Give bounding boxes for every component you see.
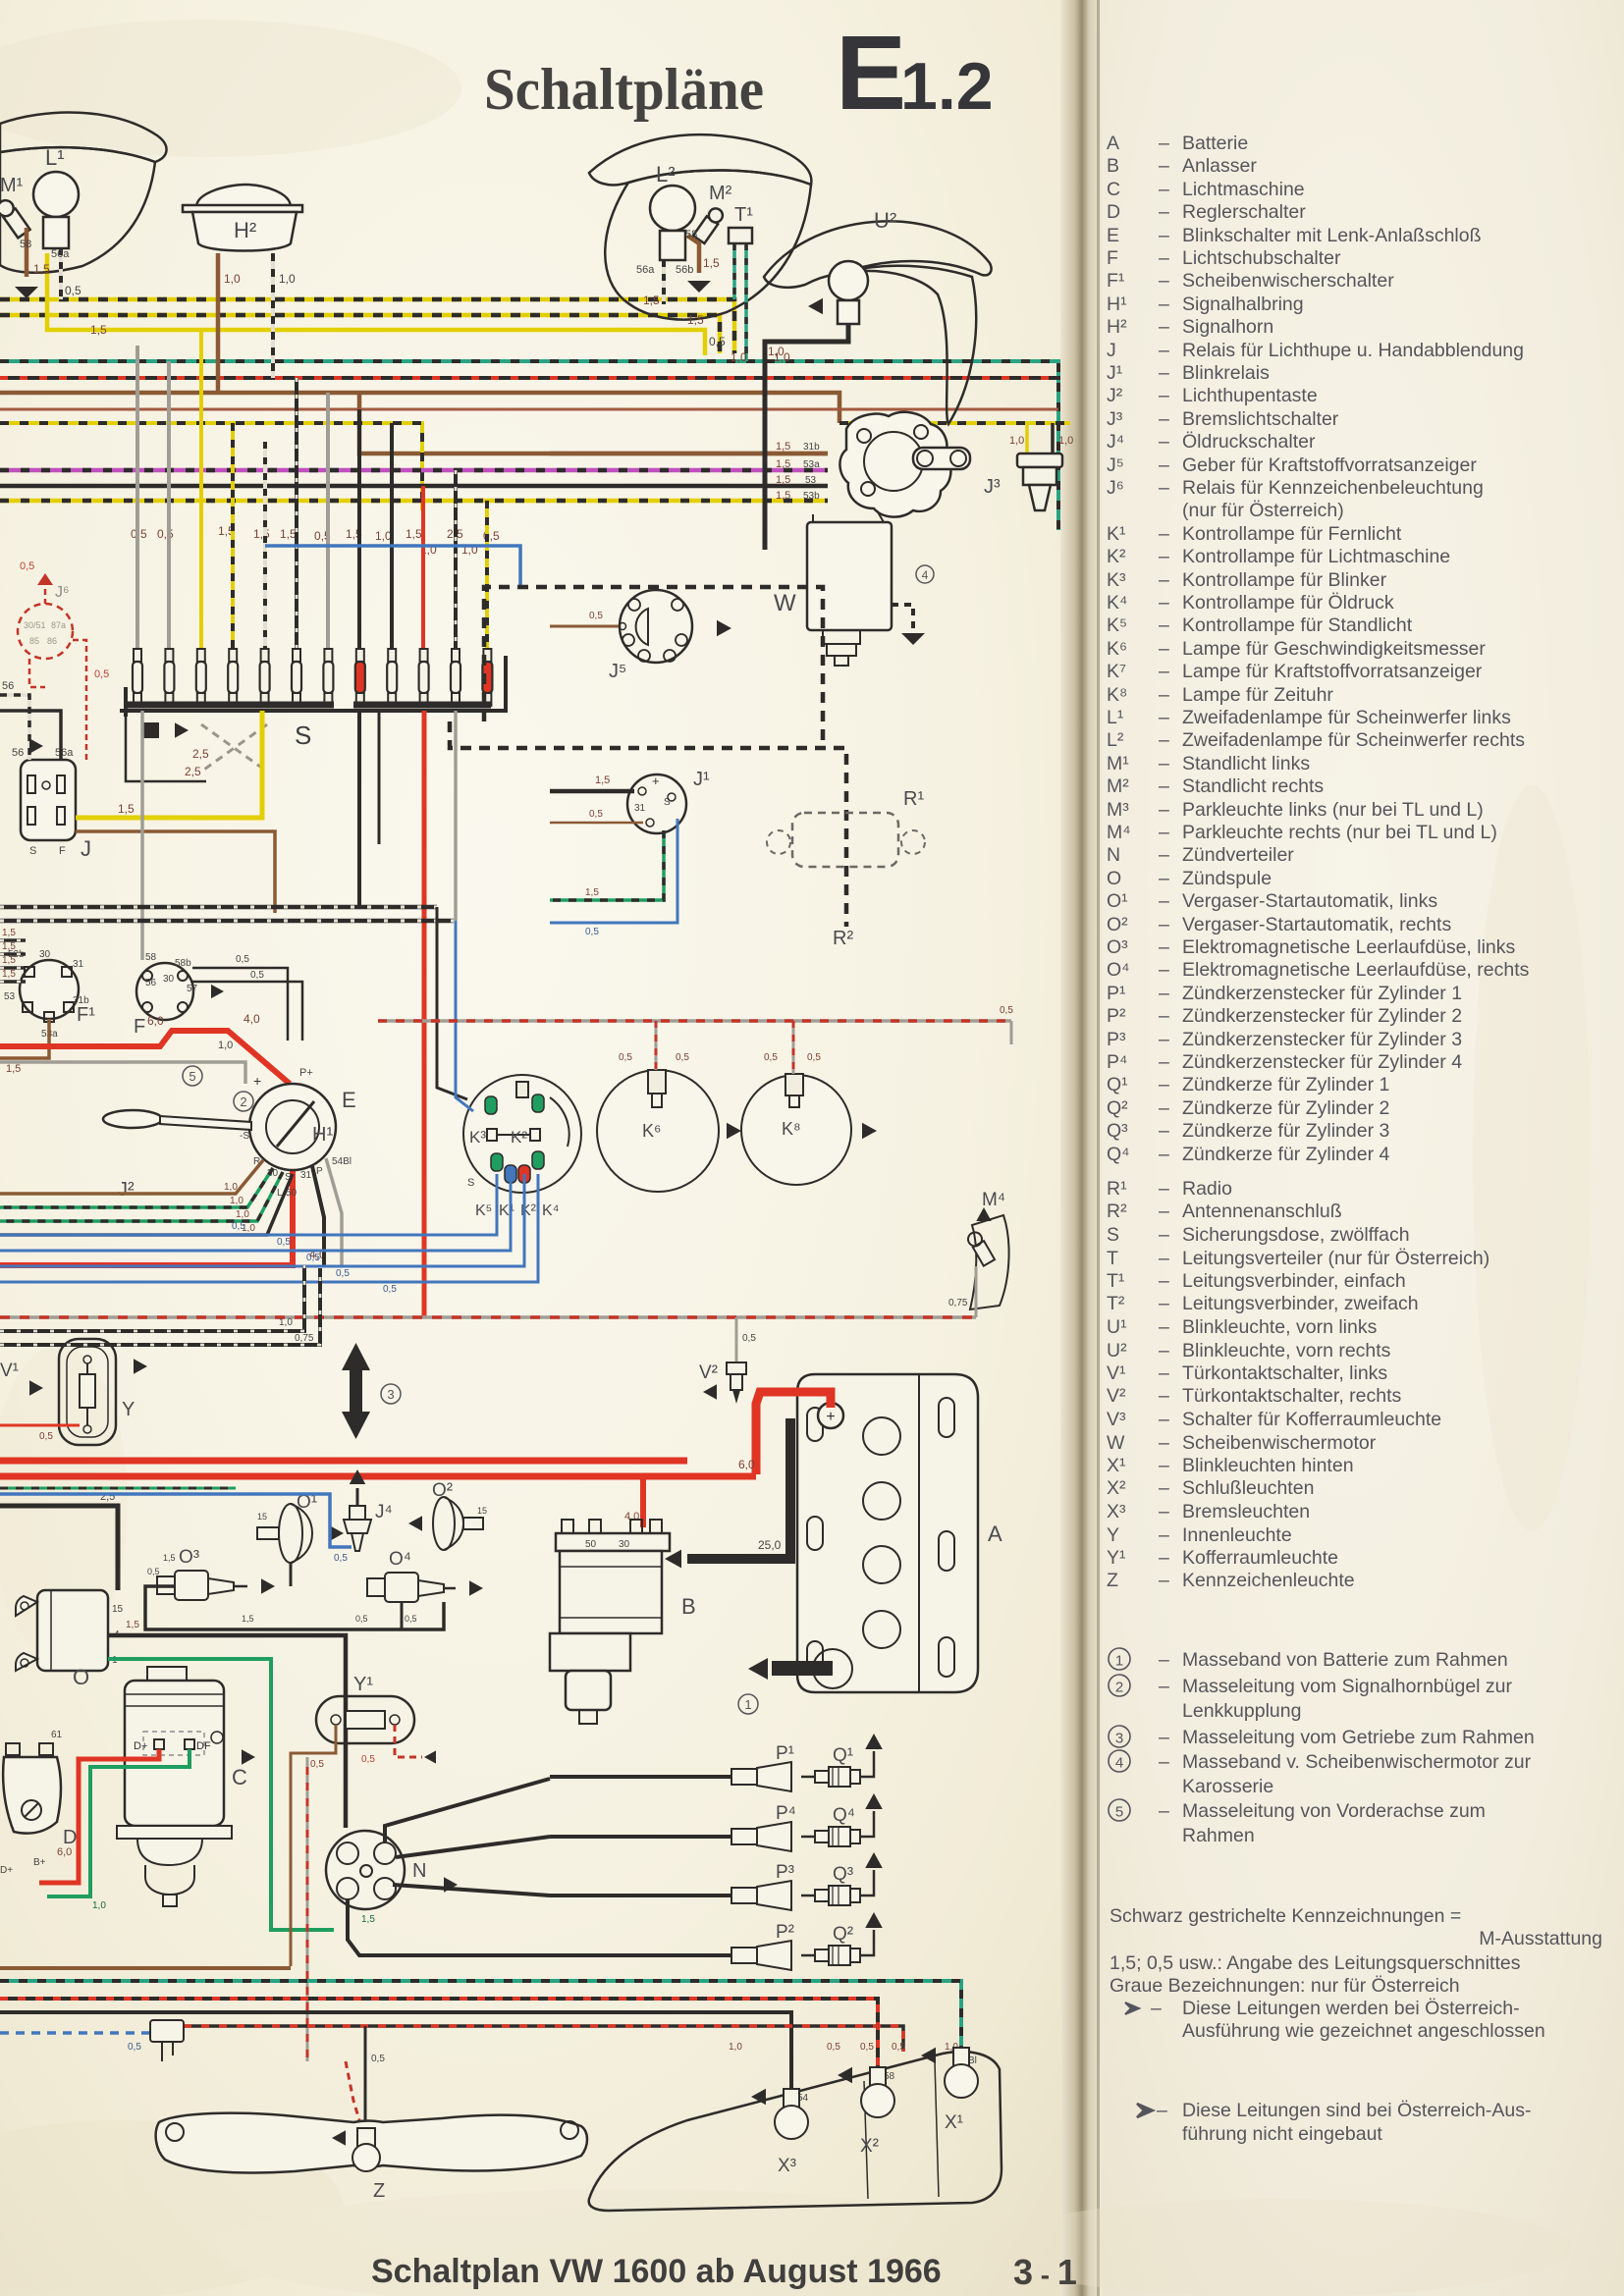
svg-text:Zündkerze für Zylinder 1: Zündkerze für Zylinder 1	[1182, 1074, 1389, 1095]
svg-text:Kofferraumleuchte: Kofferraumleuchte	[1182, 1547, 1338, 1569]
svg-text:–: –	[1159, 822, 1169, 843]
svg-text:0,5: 0,5	[232, 1221, 245, 1232]
svg-text:56: 56	[12, 747, 24, 759]
svg-text:Diese Leitungen werden bei Öst: Diese Leitungen werden bei Österreich-	[1182, 1998, 1520, 2019]
svg-text:Y¹: Y¹	[1107, 1547, 1126, 1569]
svg-text:Q¹: Q¹	[833, 1745, 853, 1766]
svg-text:53: 53	[805, 475, 817, 486]
svg-text:L²: L²	[656, 162, 676, 187]
svg-text:0,5: 0,5	[336, 1268, 350, 1279]
svg-text:J²: J²	[118, 1179, 135, 1201]
svg-text:Geber für Kraftstoffvorratsanz: Geber für Kraftstoffvorratsanzeiger	[1182, 454, 1477, 476]
svg-text:Lampe für Zeituhr: Lampe für Zeituhr	[1182, 684, 1333, 706]
svg-text:4: 4	[1115, 1755, 1123, 1772]
svg-text:K²: K²	[1107, 546, 1126, 567]
svg-text:–: –	[1159, 270, 1169, 292]
svg-text:54Bl: 54Bl	[332, 1156, 352, 1167]
svg-text:Lampe für Kraftstoffvorratsanz: Lampe für Kraftstoffvorratsanzeiger	[1182, 661, 1483, 682]
svg-text:Schalter für Kofferraumleuchte: Schalter für Kofferraumleuchte	[1182, 1409, 1441, 1430]
svg-text:–: –	[1159, 1751, 1169, 1773]
svg-text:–: –	[1159, 868, 1169, 889]
svg-text:–: –	[1159, 1120, 1169, 1142]
svg-text:–: –	[1159, 914, 1169, 935]
svg-text:P²: P²	[776, 1922, 794, 1943]
svg-text:1,5: 1,5	[242, 1614, 254, 1624]
svg-text:1: 1	[1115, 1653, 1123, 1670]
svg-text:Blinkleuchten hinten: Blinkleuchten hinten	[1182, 1455, 1354, 1476]
svg-text:P: P	[316, 1166, 323, 1177]
svg-text:1,0: 1,0	[279, 272, 296, 286]
svg-text:D+: D+	[0, 1865, 13, 1876]
svg-text:3: 3	[387, 1387, 394, 1402]
svg-text:A: A	[988, 1522, 1002, 1546]
svg-text:–: –	[1159, 1477, 1169, 1499]
svg-text:–: –	[1159, 569, 1169, 591]
svg-text:Lenkkupplung: Lenkkupplung	[1182, 1700, 1301, 1722]
svg-text:O⁴: O⁴	[1107, 959, 1130, 981]
svg-text:–: –	[1159, 1570, 1169, 1591]
svg-text:X³: X³	[778, 2156, 796, 2176]
svg-text:Graue Bezeichnungen: nur für Ö: Graue Bezeichnungen: nur für Österreich	[1110, 1975, 1460, 1997]
svg-text:0,5: 0,5	[306, 1253, 320, 1263]
svg-text:2: 2	[240, 1095, 246, 1109]
svg-text:1,0: 1,0	[768, 345, 785, 358]
svg-text:Zündkerze für Zylinder 3: Zündkerze für Zylinder 3	[1182, 1120, 1389, 1142]
svg-text:56a: 56a	[51, 248, 70, 260]
svg-text:15: 15	[257, 1512, 267, 1522]
svg-text:1,5: 1,5	[687, 313, 704, 327]
svg-text:1,0: 1,0	[731, 350, 747, 364]
svg-text:Zündkerze für Zylinder 2: Zündkerze für Zylinder 2	[1182, 1097, 1389, 1119]
svg-text:1,5: 1,5	[33, 262, 50, 276]
svg-text:Leitungsverbinder, einfach: Leitungsverbinder, einfach	[1182, 1270, 1406, 1292]
svg-text:–: –	[1159, 1293, 1169, 1314]
svg-text:J⁴: J⁴	[1107, 431, 1124, 453]
svg-text:31b: 31b	[73, 995, 89, 1006]
svg-text:0,5: 0,5	[310, 1759, 324, 1770]
svg-text:–: –	[1159, 523, 1169, 545]
svg-text:M¹: M¹	[0, 175, 24, 196]
svg-text:4: 4	[922, 568, 929, 582]
svg-text:–: –	[1159, 661, 1169, 682]
svg-text:Rahmen: Rahmen	[1182, 1825, 1255, 1846]
svg-text:P¹: P¹	[1107, 983, 1126, 1004]
svg-text:Kontrollampe für Blinker: Kontrollampe für Blinker	[1182, 569, 1387, 591]
svg-text:Q³: Q³	[833, 1864, 853, 1885]
svg-text:(nur für Österreich): (nur für Österreich)	[1182, 500, 1344, 521]
svg-text:J¹: J¹	[693, 769, 710, 790]
svg-text:0,5: 0,5	[619, 1052, 632, 1063]
svg-text:J: J	[81, 836, 91, 861]
svg-text:–: –	[1159, 316, 1169, 338]
svg-text:O⁴: O⁴	[389, 1549, 411, 1570]
svg-text:0,5: 0,5	[405, 1614, 417, 1624]
svg-text:0,5: 0,5	[585, 927, 599, 937]
svg-text:–: –	[1159, 1362, 1169, 1384]
svg-text:58: 58	[20, 239, 31, 250]
svg-text:Vergaser-Startautomatik, recht: Vergaser-Startautomatik, rechts	[1182, 914, 1451, 935]
svg-text:–: –	[1159, 1248, 1169, 1269]
svg-text:K¹: K¹	[1107, 523, 1126, 545]
svg-text:K⁴: K⁴	[1107, 592, 1127, 614]
svg-text:0,5: 0,5	[383, 1284, 397, 1295]
svg-text:–: –	[1159, 1727, 1169, 1748]
svg-text:Leitungsverteiler (nur für Öst: Leitungsverteiler (nur für Österreich)	[1182, 1248, 1489, 1269]
svg-text:1,5: 1,5	[595, 774, 610, 786]
svg-text:0,5: 0,5	[20, 561, 34, 572]
svg-text:0,5: 0,5	[807, 1052, 821, 1063]
svg-text:D+: D+	[134, 1740, 147, 1752]
svg-text:Schaltpläne: Schaltpläne	[484, 57, 764, 122]
svg-text:E: E	[342, 1088, 356, 1112]
svg-text:1,5: 1,5	[118, 802, 135, 816]
svg-text:0,5: 0,5	[371, 2054, 385, 2064]
svg-text:H²: H²	[1107, 316, 1127, 338]
svg-text:–: –	[1159, 844, 1169, 866]
svg-text:–: –	[1159, 1201, 1169, 1222]
svg-text:0,5: 0,5	[39, 1431, 53, 1442]
svg-text:30: 30	[619, 1539, 630, 1550]
svg-text:M³: M³	[1107, 799, 1129, 821]
svg-text:0,5: 0,5	[65, 284, 81, 297]
svg-text:C: C	[1107, 179, 1120, 200]
svg-text:30: 30	[39, 949, 51, 960]
svg-text:Ausführung wie gezeichnet ange: Ausführung wie gezeichnet angeschlossen	[1182, 2020, 1545, 2042]
svg-text:Zündkerzenstecker für Zylinder: Zündkerzenstecker für Zylinder 3	[1182, 1029, 1462, 1050]
svg-text:0,5: 0,5	[361, 1754, 375, 1765]
svg-text:S: S	[29, 845, 36, 857]
svg-text:Kennzeichenleuchte: Kennzeichenleuchte	[1182, 1570, 1355, 1591]
svg-text:–: –	[1159, 546, 1169, 567]
svg-text:M²: M²	[1107, 775, 1129, 797]
svg-text:–: –	[1159, 340, 1169, 361]
svg-text:1,5: 1,5	[2, 969, 16, 980]
svg-text:P³: P³	[1107, 1029, 1126, 1050]
svg-text:–: –	[1159, 179, 1169, 200]
svg-text:Parkleuchte links (nur bei TL: Parkleuchte links (nur bei TL und L)	[1182, 799, 1484, 821]
svg-text:Blinkschalter mit Lenk-Anlaßsc: Blinkschalter mit Lenk-Anlaßschloß	[1182, 225, 1482, 246]
svg-text:0,5: 0,5	[709, 335, 726, 348]
svg-text:Batterie: Batterie	[1182, 133, 1248, 154]
svg-text:M¹: M¹	[1107, 753, 1129, 774]
svg-text:F¹: F¹	[77, 1004, 95, 1026]
svg-text:Zündverteiler: Zündverteiler	[1182, 844, 1294, 866]
svg-text:P²: P²	[1107, 1005, 1126, 1027]
svg-text:Kontrollampe für Fernlicht: Kontrollampe für Fernlicht	[1182, 523, 1402, 545]
svg-text:Zündkerzenstecker für Zylinder: Zündkerzenstecker für Zylinder 4	[1182, 1051, 1462, 1073]
svg-text:A: A	[1107, 133, 1119, 154]
svg-text:58b: 58b	[175, 958, 191, 969]
svg-text:87a: 87a	[51, 620, 66, 630]
svg-text:86: 86	[47, 636, 57, 646]
svg-text:K²: K²	[511, 1128, 527, 1147]
svg-text:0,5: 0,5	[277, 1237, 291, 1248]
svg-text:–: –	[1159, 225, 1169, 246]
svg-text:0,5: 0,5	[892, 2042, 905, 2053]
svg-text:0,5: 0,5	[250, 970, 264, 981]
svg-text:1.2: 1.2	[900, 49, 994, 124]
svg-text:1,0: 1,0	[375, 529, 392, 543]
svg-text:O: O	[1107, 868, 1121, 889]
svg-text:S: S	[295, 721, 311, 750]
svg-text:Masseleitung von Vorderachse z: Masseleitung von Vorderachse zum	[1182, 1800, 1486, 1822]
svg-text:Lampe für Geschwindigkeitsmess: Lampe für Geschwindigkeitsmesser	[1182, 638, 1486, 660]
svg-text:0,5: 0,5	[764, 1052, 778, 1063]
svg-text:Standlicht links: Standlicht links	[1182, 753, 1310, 774]
svg-text:R²: R²	[833, 928, 853, 949]
svg-text:–: –	[1159, 1097, 1169, 1119]
svg-text:Signalhalbring: Signalhalbring	[1182, 294, 1304, 315]
svg-text:P³: P³	[776, 1862, 794, 1883]
svg-text:1,0: 1,0	[236, 1209, 249, 1220]
svg-text:1,5: 1,5	[776, 458, 790, 470]
svg-text:X³: X³	[1107, 1501, 1126, 1522]
svg-text:K⁶: K⁶	[642, 1121, 661, 1141]
svg-text:56a: 56a	[55, 747, 74, 759]
svg-text:15: 15	[477, 1506, 487, 1516]
svg-text:0,75: 0,75	[295, 1333, 314, 1344]
svg-text:31: 31	[634, 803, 646, 814]
svg-text:1,5: 1,5	[126, 1620, 139, 1630]
svg-text:25,0: 25,0	[758, 1538, 782, 1552]
svg-text:B+: B+	[33, 1857, 46, 1868]
svg-text:E: E	[836, 13, 904, 132]
svg-text:K³: K³	[1107, 569, 1126, 591]
svg-text:0,5: 0,5	[236, 954, 249, 965]
svg-text:+: +	[826, 1409, 835, 1425]
svg-text:J²: J²	[1107, 385, 1123, 406]
svg-text:Q²: Q²	[1107, 1097, 1128, 1119]
svg-text:1,5: 1,5	[2, 955, 16, 966]
svg-text:0,5: 0,5	[860, 2042, 874, 2053]
svg-text:56: 56	[145, 978, 157, 988]
svg-text:–: –	[1159, 1385, 1169, 1407]
svg-text:K⁵: K⁵	[1107, 614, 1127, 636]
svg-text:Z: Z	[1107, 1570, 1118, 1591]
svg-text:Masseleitung vom Getriebe zum: Masseleitung vom Getriebe zum Rahmen	[1182, 1727, 1535, 1748]
svg-text:J⁵: J⁵	[1107, 454, 1124, 476]
svg-text:0,5: 0,5	[355, 1614, 368, 1624]
svg-text:2,5: 2,5	[185, 765, 201, 778]
svg-text:–: –	[1159, 155, 1169, 177]
svg-text:Reglerschalter: Reglerschalter	[1182, 201, 1306, 223]
svg-text:–: –	[1159, 362, 1169, 384]
svg-text:53a: 53a	[803, 459, 820, 470]
svg-text:V¹: V¹	[1107, 1362, 1126, 1384]
svg-text:Anlasser: Anlasser	[1182, 155, 1257, 177]
svg-text:W: W	[1107, 1432, 1125, 1454]
svg-text:T: T	[1107, 1248, 1118, 1269]
svg-text:31b: 31b	[803, 442, 820, 453]
svg-text:Schlußleuchten: Schlußleuchten	[1182, 1477, 1314, 1499]
svg-text:–: –	[1159, 799, 1169, 821]
svg-text:–: –	[1159, 753, 1169, 774]
svg-text:0,5: 0,5	[94, 668, 109, 680]
svg-text:–: –	[1159, 294, 1169, 315]
svg-text:Blinkrelais: Blinkrelais	[1182, 362, 1270, 384]
svg-text:Lichthupentaste: Lichthupentaste	[1182, 385, 1318, 406]
svg-text:0,5: 0,5	[334, 1553, 348, 1564]
svg-text:–: –	[1159, 1524, 1169, 1546]
svg-text:Zündkerzenstecker für Zylinder: Zündkerzenstecker für Zylinder 1	[1182, 983, 1462, 1004]
svg-text:U¹: U¹	[1107, 1316, 1127, 1338]
svg-text:31: 31	[73, 959, 84, 970]
svg-text:Lichtmaschine: Lichtmaschine	[1182, 179, 1305, 200]
svg-text:–: –	[1159, 1501, 1169, 1522]
svg-text:F: F	[1107, 247, 1118, 269]
svg-text:S: S	[467, 1177, 474, 1189]
svg-text:R²: R²	[1107, 1201, 1127, 1222]
svg-text:0,5: 0,5	[1000, 1005, 1013, 1016]
svg-text:Vergaser-Startautomatik, links: Vergaser-Startautomatik, links	[1182, 890, 1437, 912]
svg-text:1,0: 1,0	[92, 1900, 106, 1911]
svg-text:15: 15	[112, 1604, 124, 1615]
svg-text:X¹: X¹	[945, 2112, 963, 2133]
svg-text:2,5: 2,5	[192, 747, 209, 761]
svg-text:Scheibenwischermotor: Scheibenwischermotor	[1182, 1432, 1377, 1454]
svg-text:M⁴: M⁴	[1107, 822, 1131, 843]
svg-text:M⁴: M⁴	[982, 1190, 1005, 1210]
svg-text:5: 5	[1115, 1804, 1123, 1821]
svg-text:0,75: 0,75	[948, 1298, 968, 1308]
svg-text:0,5: 0,5	[742, 1333, 756, 1344]
svg-text:T¹: T¹	[1107, 1270, 1125, 1292]
svg-text:V¹: V¹	[0, 1361, 19, 1381]
svg-text:Parkleuchte rechts (nur bei TL: Parkleuchte rechts (nur bei TL und L)	[1182, 822, 1497, 843]
svg-text:1,5: 1,5	[6, 1063, 21, 1075]
svg-text:1,5: 1,5	[90, 323, 107, 337]
svg-text:0,5: 0,5	[147, 1567, 160, 1576]
svg-text:Leitungsverbinder, zweifach: Leitungsverbinder, zweifach	[1182, 1293, 1419, 1314]
svg-text:1,5: 1,5	[776, 441, 790, 453]
svg-text:56b: 56b	[676, 264, 693, 276]
svg-text:K⁸: K⁸	[1107, 684, 1127, 706]
svg-text:–: –	[1159, 133, 1169, 154]
svg-text:Kontrollampe für Standlicht: Kontrollampe für Standlicht	[1182, 614, 1413, 636]
svg-text:O³: O³	[179, 1547, 199, 1568]
svg-text:Karosserie: Karosserie	[1182, 1776, 1273, 1797]
svg-text:X²: X²	[860, 2136, 879, 2157]
svg-text:M-Ausstattung: M-Ausstattung	[1479, 1928, 1602, 1949]
svg-text:K⁷: K⁷	[1107, 661, 1126, 682]
svg-text:Scheibenwischerschalter: Scheibenwischerschalter	[1182, 270, 1394, 292]
svg-text:–: –	[1159, 775, 1169, 797]
svg-text:Sicherungsdose, zwölffach: Sicherungsdose, zwölffach	[1182, 1224, 1410, 1246]
svg-text:Schwarz gestrichelte Kennzeich: Schwarz gestrichelte Kennzeichnungen =	[1110, 1905, 1461, 1927]
svg-text:–: –	[1159, 983, 1169, 1004]
svg-text:–: –	[1159, 454, 1169, 476]
svg-text:Masseleitung vom Signalhornbüg: Masseleitung vom Signalhornbügel zur	[1182, 1676, 1513, 1697]
svg-text:1,5: 1,5	[2, 928, 16, 938]
svg-text:1,5: 1,5	[406, 527, 422, 541]
svg-text:–: –	[1159, 707, 1169, 728]
svg-text:1,5: 1,5	[585, 887, 599, 898]
svg-text:K⁴: K⁴	[542, 1202, 560, 1219]
svg-text:J: J	[1107, 340, 1116, 361]
svg-text:–: –	[1159, 936, 1169, 958]
svg-text:1: 1	[744, 1697, 751, 1712]
svg-text:0,5: 0,5	[589, 611, 603, 621]
svg-text:85: 85	[29, 636, 39, 646]
svg-text:O: O	[73, 1665, 89, 1689]
svg-text:L¹: L¹	[45, 145, 65, 170]
svg-text:–: –	[1159, 477, 1169, 499]
svg-text:Radio: Radio	[1182, 1178, 1232, 1200]
svg-text:–: –	[1159, 592, 1169, 614]
svg-text:1,5: 1,5	[776, 474, 790, 486]
svg-text:J³: J³	[984, 476, 1001, 498]
svg-text:P¹: P¹	[776, 1743, 794, 1764]
svg-text:F¹: F¹	[1107, 270, 1125, 292]
svg-text:L²: L²	[1107, 729, 1124, 751]
svg-text:–: –	[1159, 1270, 1169, 1292]
svg-text:–: –	[1159, 1178, 1169, 1200]
svg-text:1,5: 1,5	[2, 941, 16, 952]
svg-text:Elektromagnetische Leerlaufdüs: Elektromagnetische Leerlaufdüse, rechts	[1182, 959, 1530, 981]
svg-text:U²: U²	[1107, 1340, 1127, 1362]
svg-text:–: –	[1159, 684, 1169, 706]
svg-text:56: 56	[2, 680, 14, 692]
svg-text:–: –	[1159, 1074, 1169, 1095]
svg-text:50: 50	[585, 1539, 597, 1550]
svg-text:Q⁴: Q⁴	[833, 1805, 855, 1826]
svg-text:X¹: X¹	[1107, 1455, 1126, 1476]
svg-text:+: +	[652, 774, 660, 788]
svg-text:–: –	[1157, 2100, 1167, 2121]
svg-text:N: N	[412, 1860, 426, 1882]
svg-text:-S: -S	[240, 1131, 249, 1142]
svg-text:–: –	[1159, 638, 1169, 660]
svg-text:4,0: 4,0	[624, 1511, 639, 1522]
svg-text:1,0: 1,0	[230, 1196, 244, 1206]
svg-text:Q²: Q²	[833, 1924, 853, 1945]
svg-text:–: –	[1159, 408, 1169, 430]
svg-text:H²: H²	[234, 218, 256, 242]
svg-text:J³: J³	[1107, 408, 1123, 430]
svg-text:6,0: 6,0	[57, 1846, 72, 1858]
svg-text:L¹: L¹	[1107, 707, 1124, 728]
svg-text:3: 3	[1115, 1731, 1123, 1747]
svg-text:O³: O³	[1107, 936, 1128, 958]
svg-text:–: –	[1159, 431, 1169, 453]
svg-text:Q¹: Q¹	[1107, 1074, 1128, 1095]
svg-text:E: E	[1107, 225, 1119, 246]
svg-text:1,0: 1,0	[729, 2042, 742, 2053]
svg-text:Y¹: Y¹	[353, 1674, 373, 1695]
svg-text:Q⁴: Q⁴	[1107, 1144, 1130, 1165]
svg-text:–: –	[1159, 1340, 1169, 1362]
svg-text:J⁴: J⁴	[375, 1502, 393, 1522]
svg-text:–: –	[1159, 959, 1169, 981]
svg-text:53: 53	[4, 991, 16, 1002]
svg-text:61: 61	[51, 1730, 63, 1740]
svg-text:Elektromagnetische Leerlaufdüs: Elektromagnetische Leerlaufdüse, links	[1182, 936, 1516, 958]
svg-text:V³: V³	[1107, 1409, 1126, 1430]
svg-text:Y: Y	[1107, 1524, 1119, 1546]
svg-text:S: S	[1107, 1224, 1119, 1246]
svg-text:Masseband von Batterie zum Rah: Masseband von Batterie zum Rahmen	[1182, 1649, 1508, 1671]
svg-text:X²: X²	[1107, 1477, 1126, 1499]
svg-text:K⁶: K⁶	[1107, 638, 1127, 660]
svg-text:58: 58	[685, 229, 697, 240]
svg-text:T²: T²	[1107, 1293, 1125, 1314]
svg-text:Zündkerze für Zylinder 4: Zündkerze für Zylinder 4	[1182, 1144, 1389, 1165]
svg-text:1,5: 1,5	[361, 1914, 375, 1925]
svg-text:–: –	[1159, 614, 1169, 636]
svg-text:1,0: 1,0	[1058, 435, 1073, 447]
svg-text:Bremsleuchten: Bremsleuchten	[1182, 1501, 1310, 1522]
svg-text:1,0: 1,0	[224, 272, 241, 286]
